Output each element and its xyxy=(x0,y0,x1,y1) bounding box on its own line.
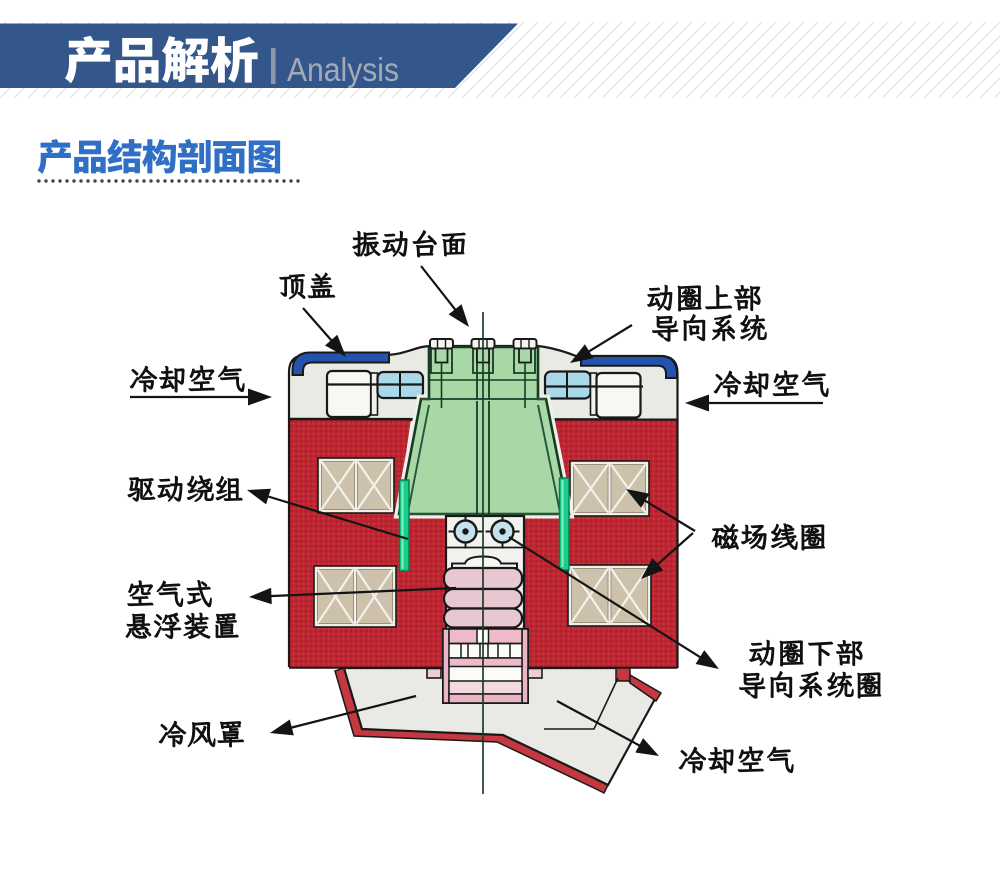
svg-text:Analysis: Analysis xyxy=(287,51,399,88)
